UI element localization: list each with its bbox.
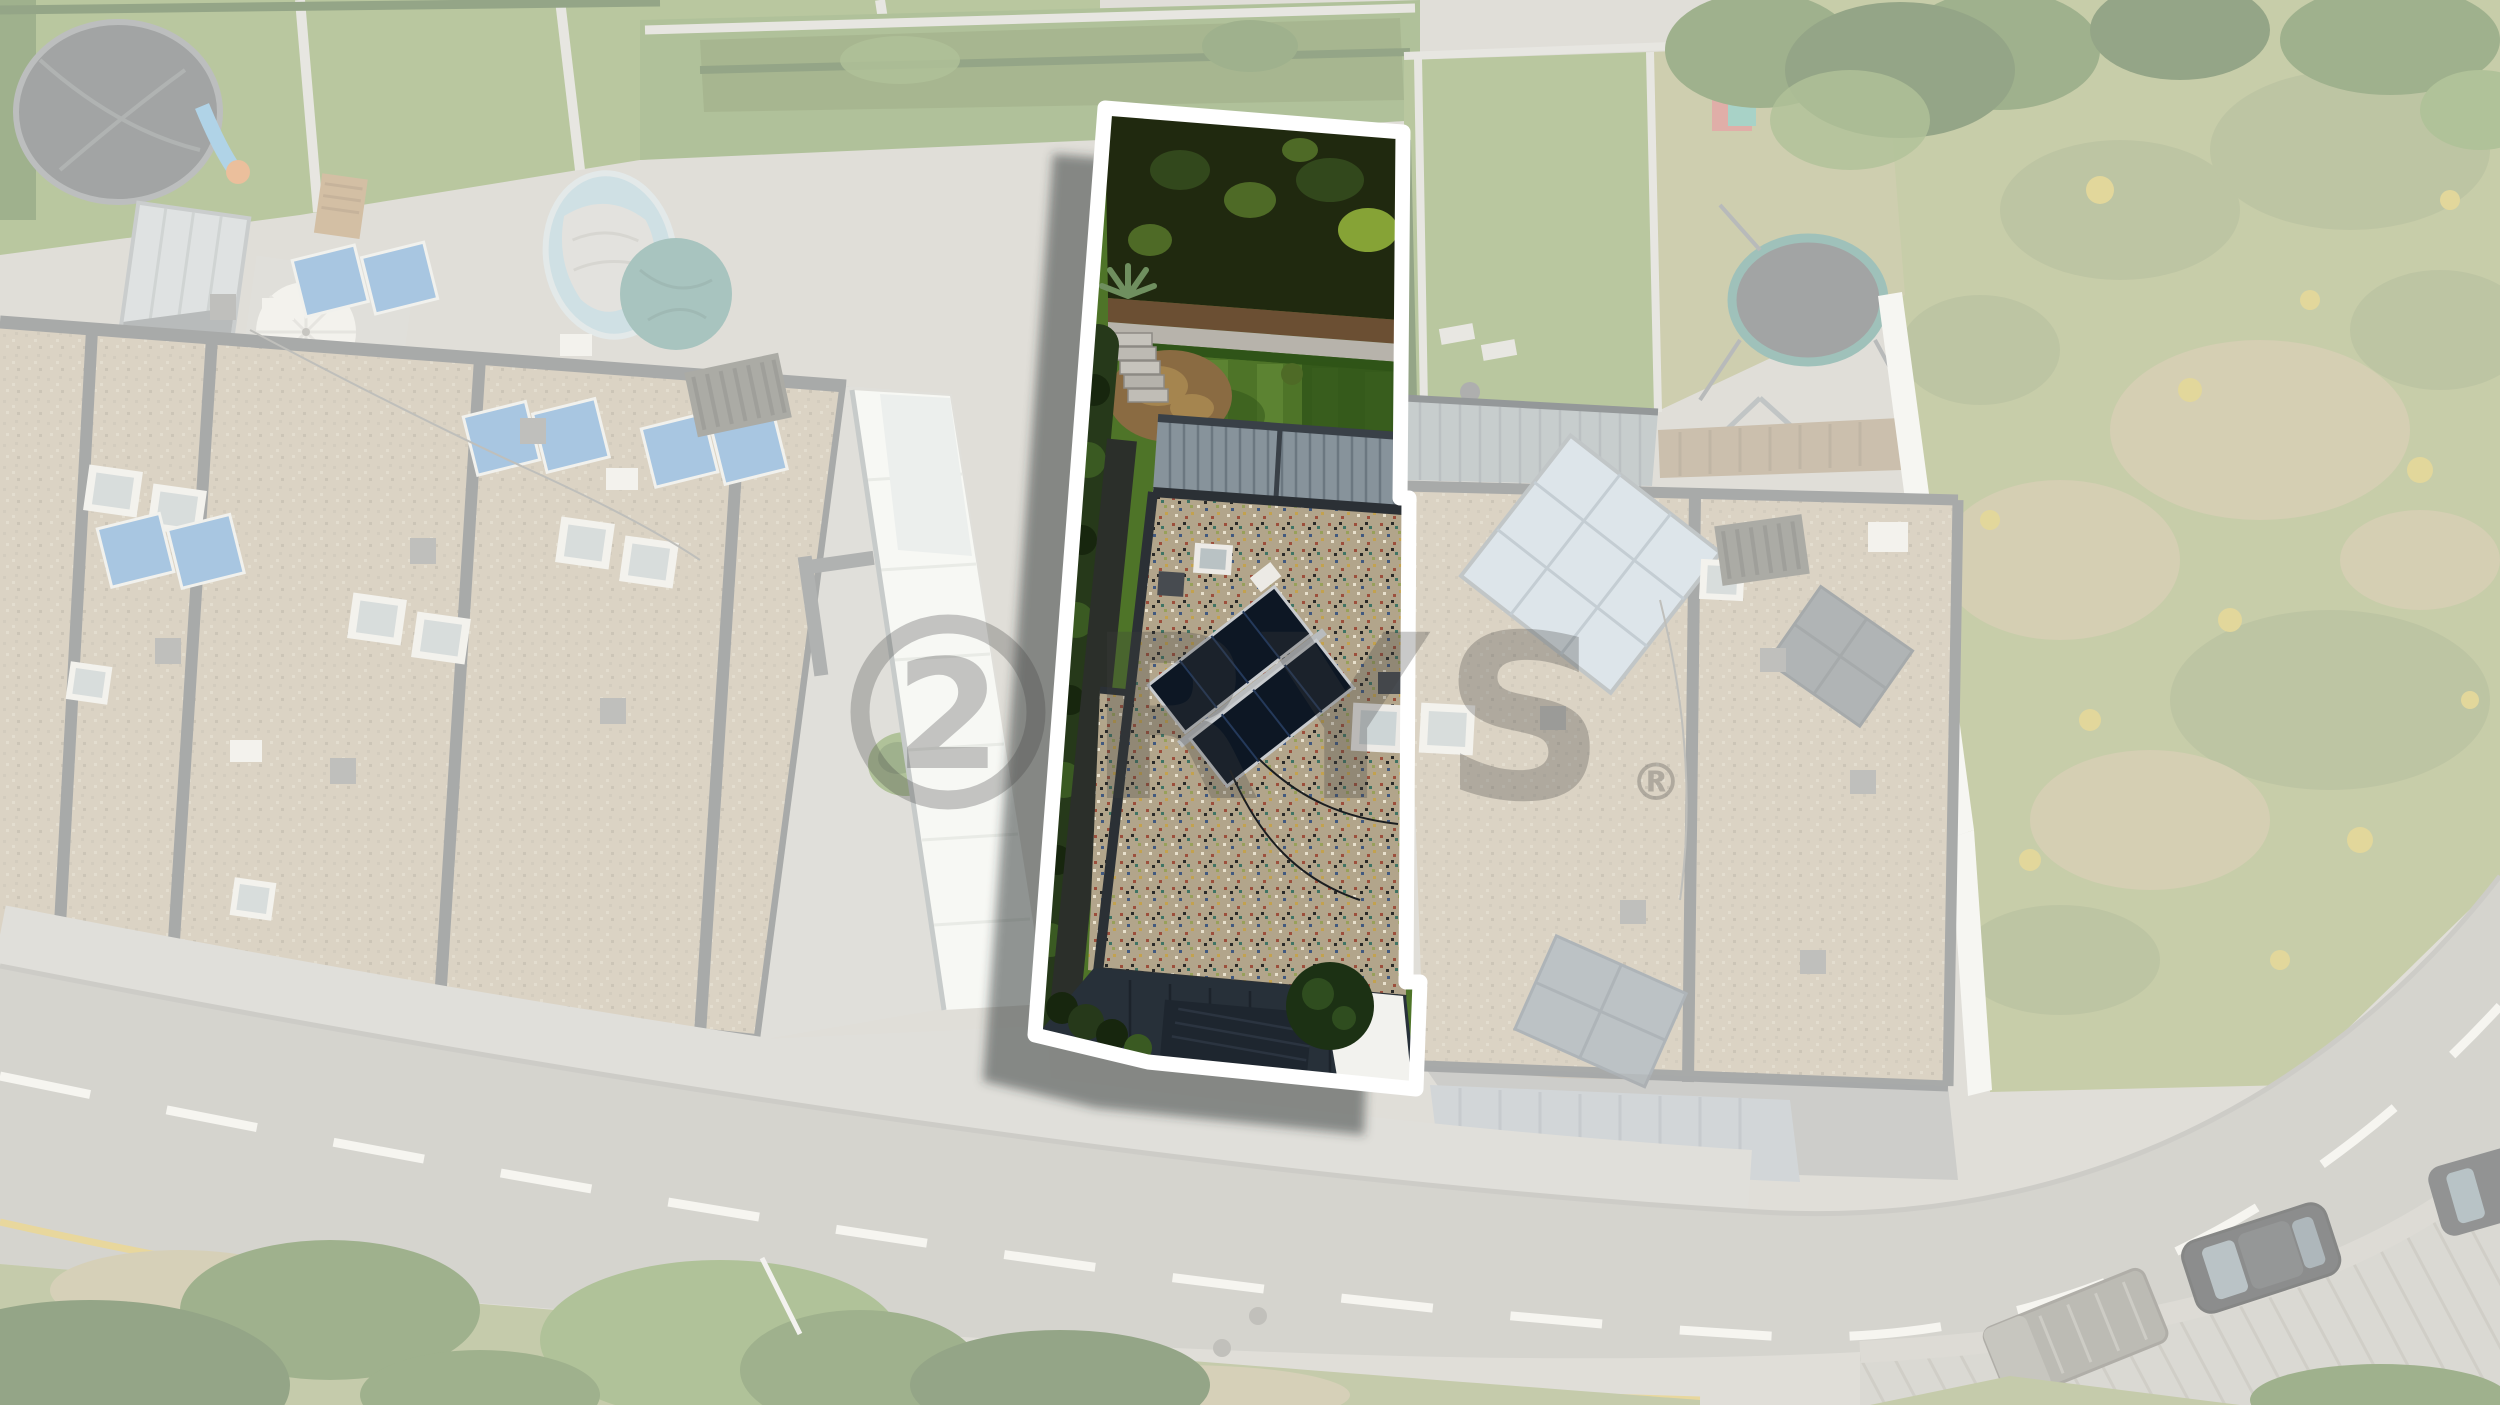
entrance-tree [1286, 962, 1374, 1050]
skylight-small [1193, 543, 1233, 576]
aerial-property-photo: 2 RYS ® [0, 0, 2500, 1405]
watermark-text: RYS [1086, 586, 1620, 852]
aerial-scene-svg: 2 RYS ® [0, 0, 2500, 1405]
watermark-registered: ® [1630, 753, 1682, 813]
watermark-logo-glyph: 2 [895, 627, 1001, 804]
